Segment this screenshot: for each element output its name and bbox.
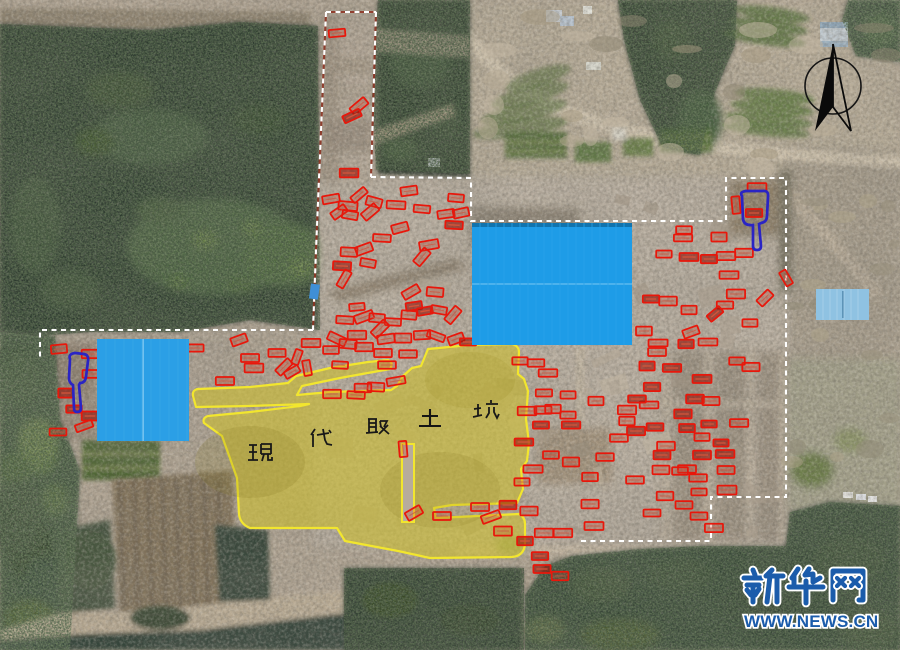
svg-text:WWW.NEWS.CN: WWW.NEWS.CN bbox=[744, 612, 878, 631]
